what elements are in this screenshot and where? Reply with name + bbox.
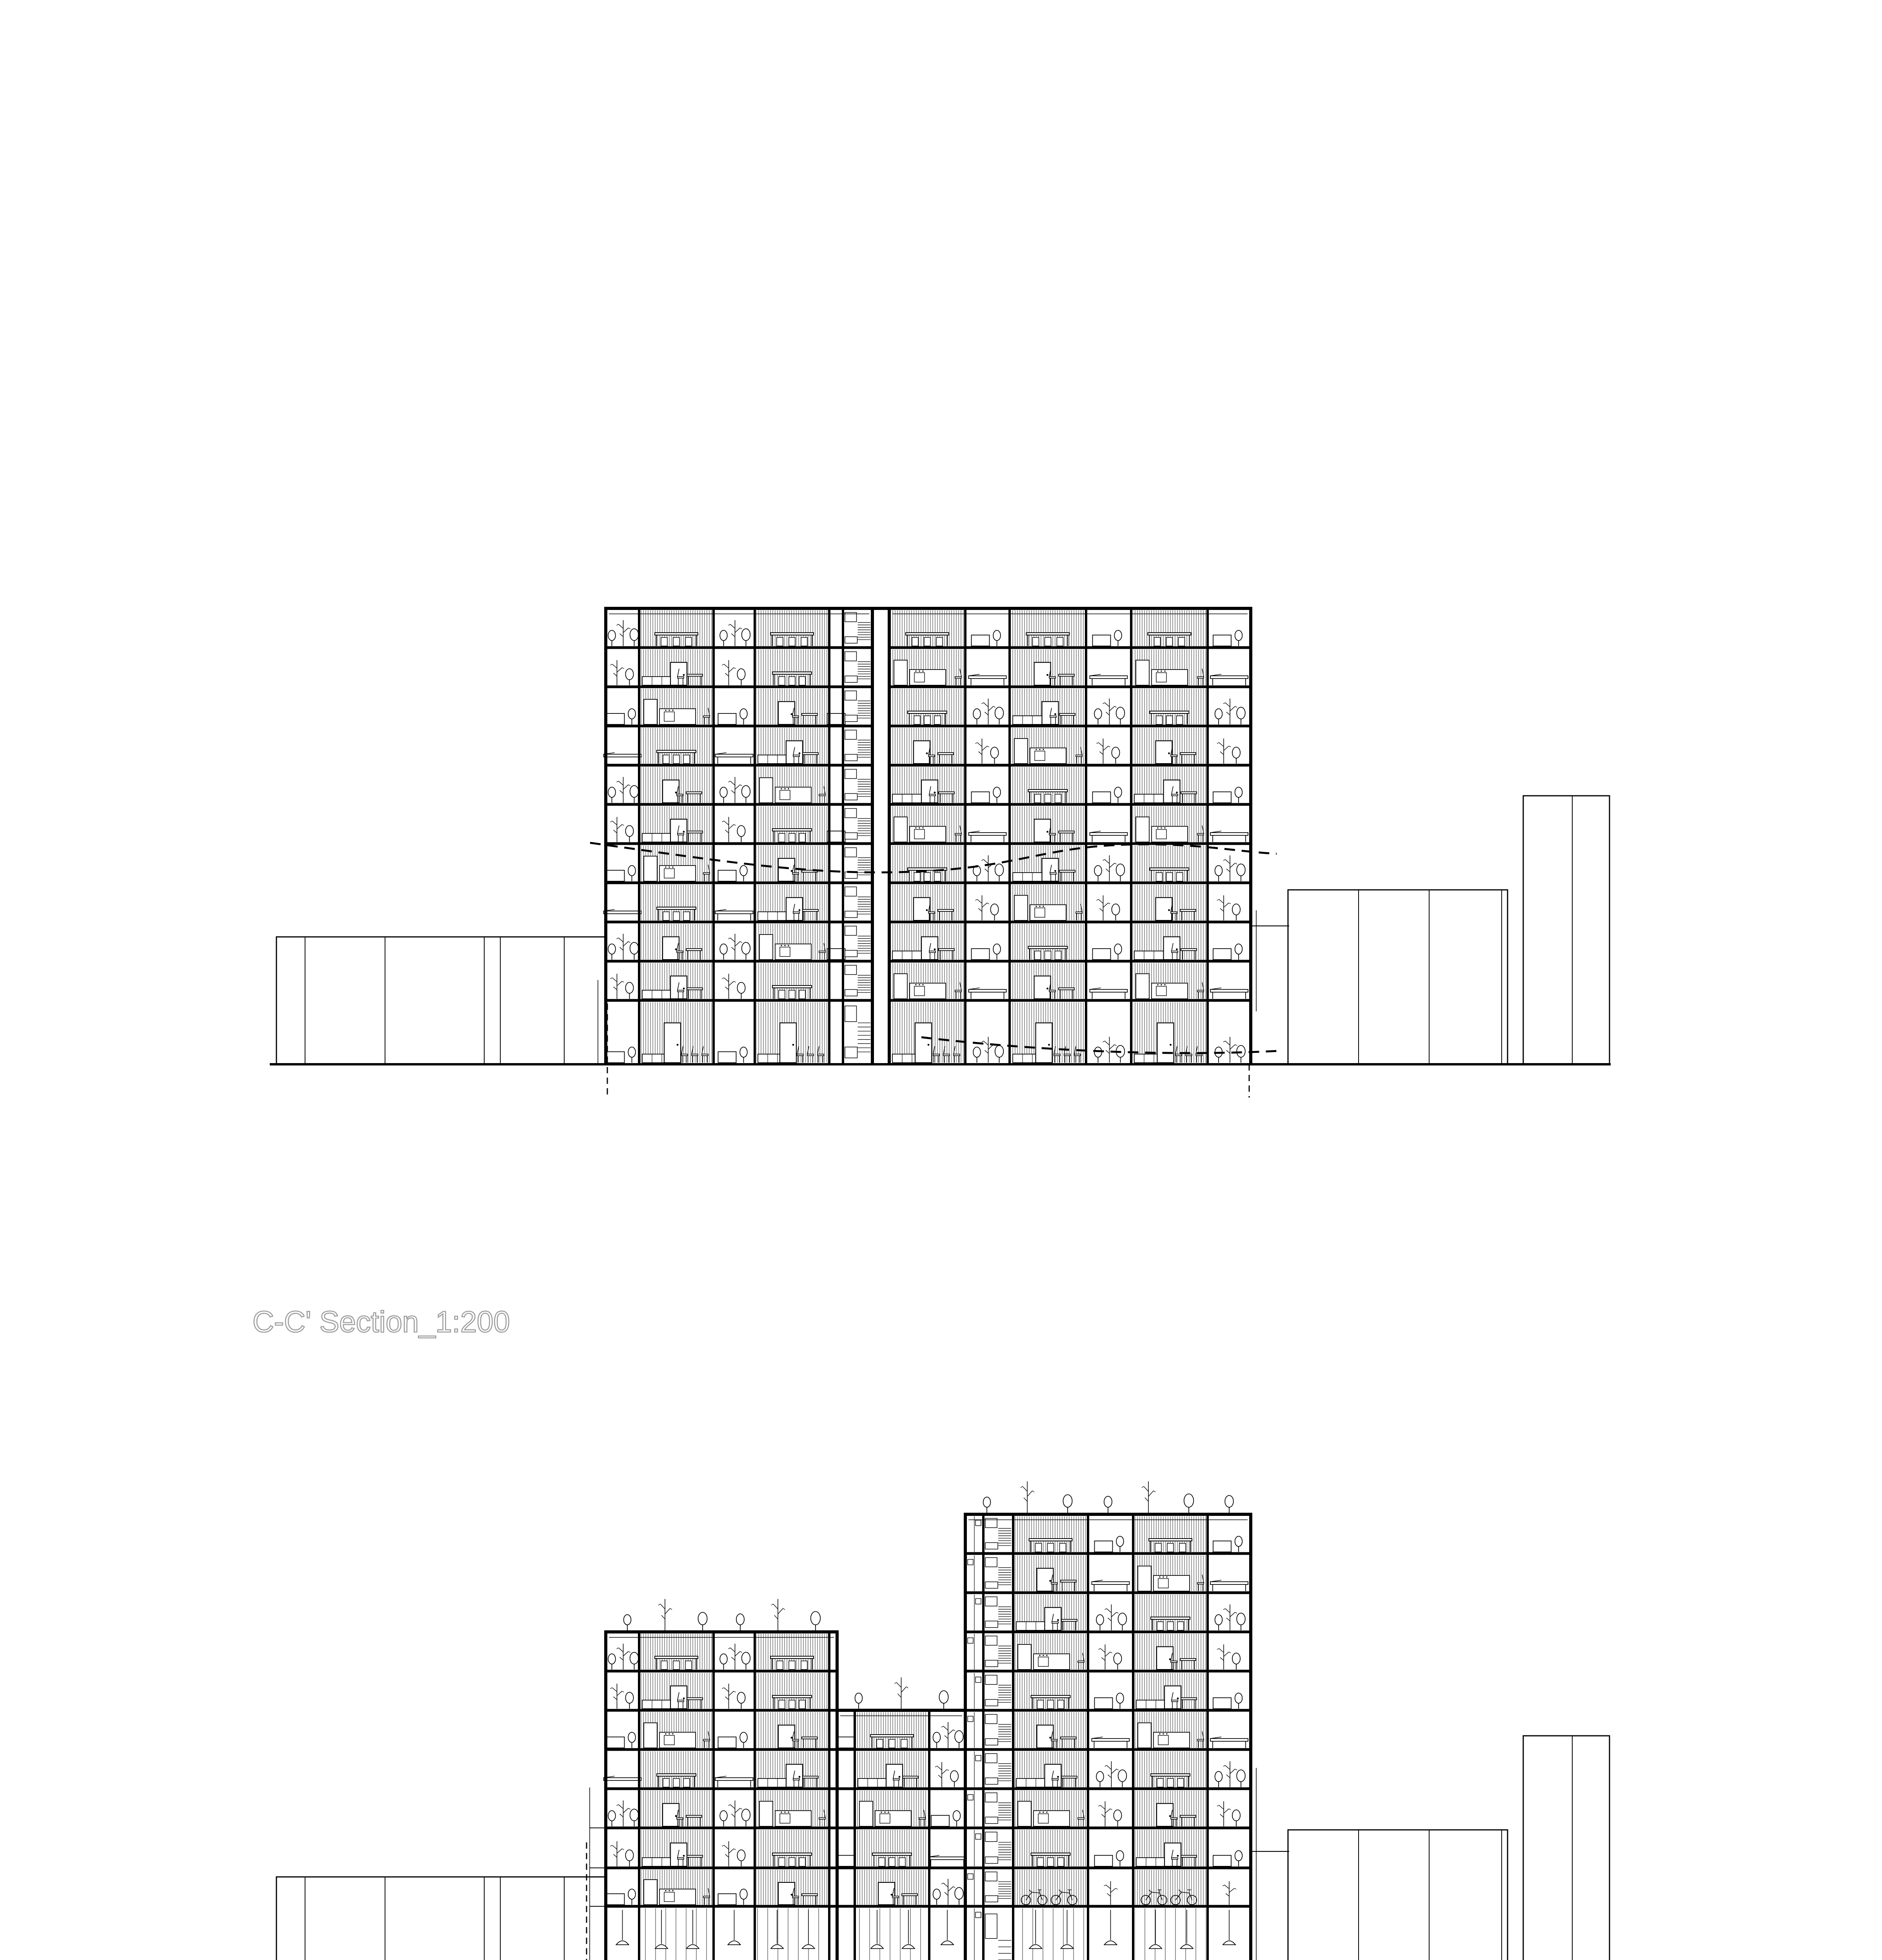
context-building [276, 1877, 606, 1960]
section-bb [270, 1481, 1611, 1960]
cc-right-wing [888, 608, 1252, 1064]
context-building [1523, 1736, 1610, 1960]
bb-tower [964, 1481, 1252, 1960]
bb-mid-block [836, 1677, 967, 1960]
context-building [1288, 890, 1508, 1064]
context-building [1523, 796, 1610, 1064]
cc-left-wing [604, 608, 874, 1064]
bb-left-block [604, 1599, 839, 1960]
section-cc [270, 608, 1611, 1098]
architectural-drawing-sheet: C-C' Section_1:200 B-B' Section_1:200 [0, 0, 1882, 1960]
section-label-cc: C-C' Section_1:200 [253, 1305, 510, 1339]
context-building [1288, 1830, 1508, 1960]
context-building [276, 937, 606, 1064]
sections-drawing [270, 608, 1611, 1960]
